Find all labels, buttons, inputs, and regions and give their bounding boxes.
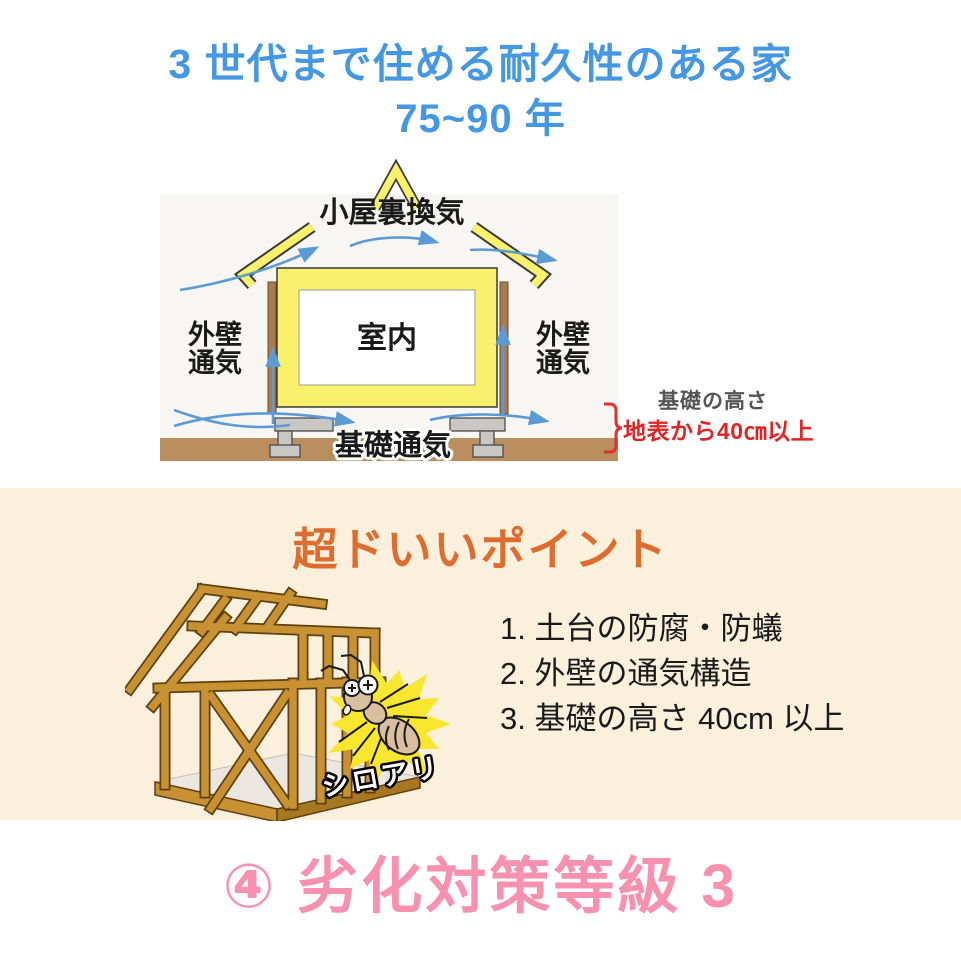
infographic-page: 3 世代まで住める耐久性のある家 75~90 年	[0, 0, 961, 958]
points-list: 1. 土台の防腐・防蟻 2. 外壁の通気構造 3. 基礎の高さ 40cm 以上	[500, 606, 845, 741]
foundation-ventilation-label: 基礎通気	[335, 429, 451, 462]
points-section-title: 超ドいいポイント	[0, 513, 961, 578]
wall-vent-left-label-1: 外壁	[188, 320, 242, 350]
list-item: 2. 外壁の通気構造	[500, 651, 845, 696]
wall-vent-left-label-2: 通気	[188, 347, 242, 378]
page-title: 3 世代まで住める耐久性のある家	[0, 30, 961, 90]
list-item: 1. 土台の防腐・防蟻	[500, 606, 845, 651]
points-section: 超ドいいポイント	[0, 488, 961, 820]
room-label: 室内	[357, 321, 417, 355]
page-subtitle-years: 75~90 年	[0, 86, 961, 144]
wall-vent-right-label-2: 通気	[536, 347, 590, 378]
attic-ventilation-label: 小屋裏換気	[319, 195, 464, 229]
wood-frame-illustration: シロアリ	[125, 576, 455, 821]
foundation-height-note-value: 地表から40㎝以上	[623, 412, 814, 446]
grade-heading: ④ 劣化対策等級 3	[0, 836, 961, 925]
foundation-height-note-title: 基礎の高さ	[658, 385, 768, 415]
house-ventilation-diagram: 小屋裏換気 室内 外壁 通気 外壁 通気 基礎通気	[158, 158, 628, 468]
wall-vent-right-label-1: 外壁	[536, 320, 590, 350]
list-item: 3. 基礎の高さ 40cm 以上	[500, 696, 845, 741]
